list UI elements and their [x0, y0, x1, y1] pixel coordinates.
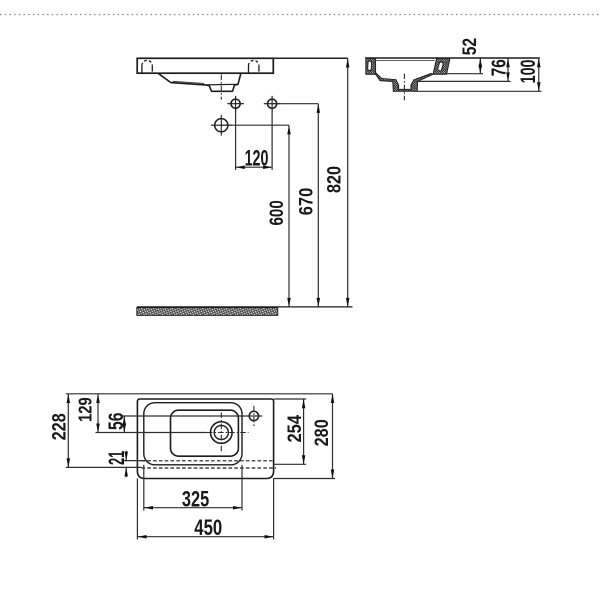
- svg-text:670: 670: [297, 188, 318, 215]
- svg-text:254: 254: [285, 415, 306, 443]
- svg-text:100: 100: [517, 60, 540, 84]
- svg-text:325: 325: [182, 486, 209, 511]
- svg-text:129: 129: [76, 397, 96, 422]
- svg-text:21: 21: [104, 451, 129, 465]
- svg-text:280: 280: [311, 419, 333, 446]
- svg-text:228: 228: [48, 413, 70, 440]
- svg-text:120: 120: [245, 145, 269, 170]
- svg-text:600: 600: [267, 200, 288, 225]
- svg-text:76: 76: [489, 59, 511, 76]
- svg-text:52: 52: [460, 38, 481, 55]
- svg-text:820: 820: [325, 166, 346, 193]
- svg-text:56: 56: [105, 413, 128, 431]
- svg-text:450: 450: [194, 515, 222, 540]
